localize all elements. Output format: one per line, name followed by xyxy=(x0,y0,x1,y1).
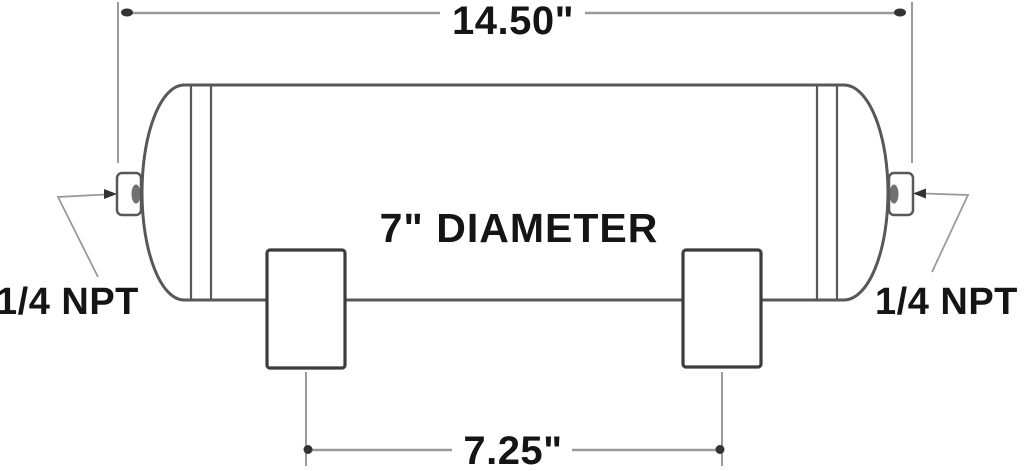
dimension-terminator-right xyxy=(894,9,906,17)
tank-right-end-cap xyxy=(844,85,888,300)
leader-arrow-left xyxy=(104,189,117,199)
dimension-dot-left xyxy=(304,445,313,454)
port-hole-left xyxy=(132,185,141,204)
tank-left-end-cap xyxy=(142,85,184,300)
dimension-dot-right xyxy=(716,445,725,454)
port-label-right: 1/4 NPT xyxy=(875,281,1018,323)
diameter-label: 7" DIAMETER xyxy=(380,205,659,251)
leader-line-right xyxy=(924,194,968,273)
dimension-terminator-left xyxy=(121,9,133,17)
mounting-bracket-left xyxy=(267,250,345,368)
leader-line-left xyxy=(58,195,106,278)
overall-length-label: 14.50" xyxy=(452,0,574,43)
bracket-spacing-label: 7.25" xyxy=(463,429,562,471)
port-hole-right xyxy=(890,185,899,204)
tank-dimension-diagram: 14.50" 7" DIAMETER 1/4 NPT 1/4 NPT xyxy=(0,0,1024,471)
drawing-canvas: 14.50" 7" DIAMETER 1/4 NPT 1/4 NPT xyxy=(0,0,1024,471)
mounting-bracket-right xyxy=(683,250,761,367)
port-label-left: 1/4 NPT xyxy=(0,281,139,323)
leader-arrow-right xyxy=(913,189,926,199)
